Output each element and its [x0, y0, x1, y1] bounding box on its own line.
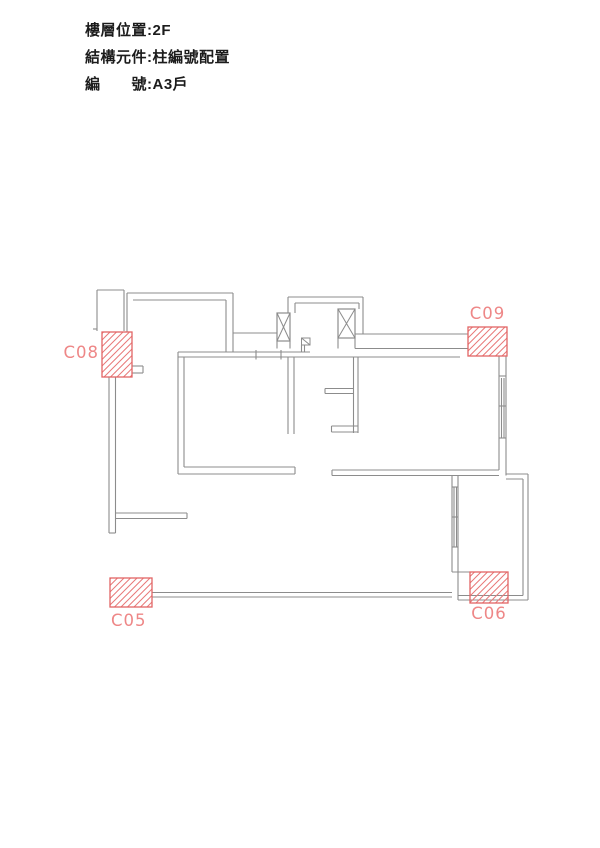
- column-label-c05: C05: [111, 611, 147, 630]
- column-box-c08: [102, 332, 132, 377]
- column-label-c08: C08: [63, 343, 99, 362]
- detail-square-diagonal: [302, 338, 311, 345]
- column-box-c05: [110, 578, 152, 607]
- walls-layer: [93, 290, 528, 600]
- column-label-c06: C06: [471, 604, 507, 623]
- column-label-c09: C09: [470, 304, 506, 323]
- column-box-c09: [468, 327, 507, 356]
- floor-plan-canvas: C05C06C08C09: [0, 0, 600, 848]
- drawing-sheet: 樓層位置:2F 結構元件:柱編號配置 編 號:A3戶 C05C06C08C09: [0, 0, 600, 848]
- column-box-c06: [470, 572, 508, 603]
